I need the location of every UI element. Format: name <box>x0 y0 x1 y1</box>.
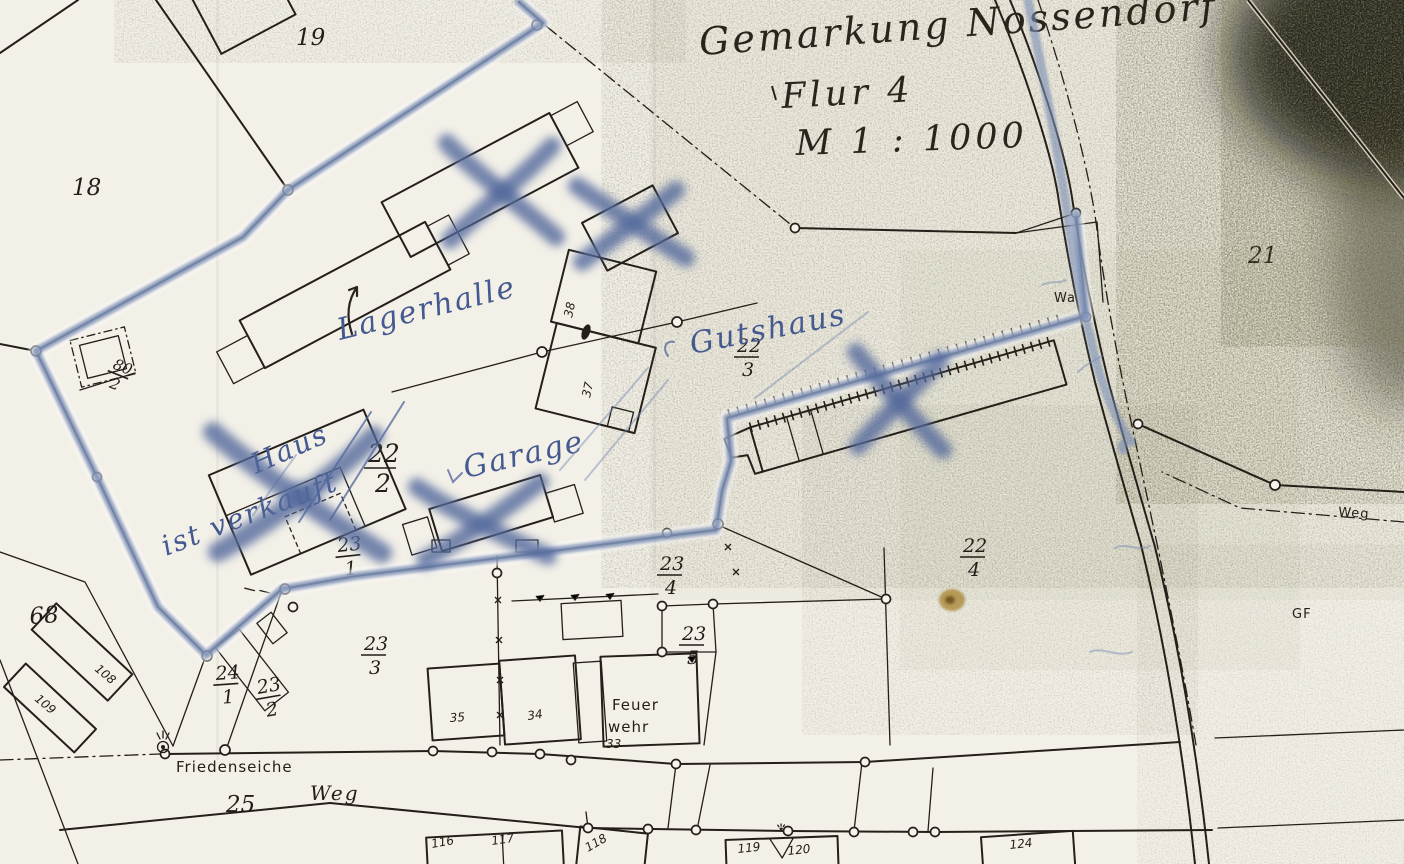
svg-text:23: 23 <box>363 633 388 655</box>
building-119-label: 119 <box>737 840 761 856</box>
svg-text:22: 22 <box>962 535 987 557</box>
svg-text:3: 3 <box>742 359 754 381</box>
svg-text:4: 4 <box>967 559 980 581</box>
svg-text:5: 5 <box>687 647 699 669</box>
weg-bottom-label: Weg <box>310 781 360 805</box>
building-124-label: 124 <box>1009 836 1033 852</box>
wa-label: Wa <box>1054 291 1076 306</box>
building-33-label: 33 <box>606 737 621 751</box>
svg-text:23: 23 <box>659 553 684 575</box>
svg-text:23: 23 <box>681 623 706 645</box>
handwriting-scale: M 1 : 1000 <box>794 116 1029 164</box>
parcel-18-label: 18 <box>72 175 101 201</box>
parcel-25-label: 25 <box>225 792 255 818</box>
paper-stain <box>939 589 965 611</box>
map-canvas: 19 18 21 25 68 80 2 22 2 22 3 22 4 23 1 <box>0 0 1404 864</box>
weg-right-label: Weg <box>1338 505 1370 522</box>
building-34-label: 34 <box>526 707 543 723</box>
svg-text:24: 24 <box>214 661 241 685</box>
scanned-cadastral-map: 19 18 21 25 68 80 2 22 2 22 3 22 4 23 1 <box>0 0 1404 864</box>
svg-text:2: 2 <box>374 469 391 498</box>
building-35-label: 35 <box>449 710 465 725</box>
svg-text:1: 1 <box>221 686 235 709</box>
feuerwehr-label-line2: wehr <box>608 718 649 736</box>
friedenseiche-label: Friedenseiche <box>176 758 293 776</box>
handwriting-flur: Flur 4 <box>779 70 914 117</box>
svg-text:3: 3 <box>369 657 381 679</box>
gf-label: GF <box>1292 607 1312 622</box>
building-120-label: 120 <box>787 842 812 858</box>
svg-text:4: 4 <box>664 577 677 599</box>
feuerwehr-label-line1: Feuer <box>612 696 659 714</box>
parcel-68-label: 68 <box>29 602 60 630</box>
parcel-19-label: 19 <box>296 25 325 51</box>
